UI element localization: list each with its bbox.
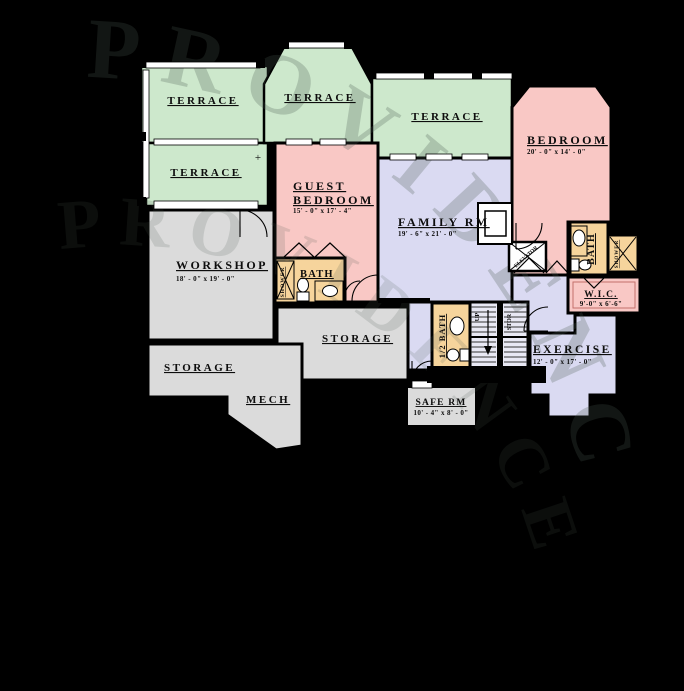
label-storage-left: STORAGE (164, 362, 235, 374)
window-strip (154, 139, 258, 145)
label-guest-line1: GUEST (293, 179, 346, 193)
wall-segment (378, 298, 430, 303)
label-safe-room: SAFE RM (416, 398, 467, 408)
label-stairs-up: UP (474, 313, 481, 322)
dims-exercise: 12' - 0" x 17' - 0" (533, 358, 592, 366)
label-terrace-mid-left: TERRACE (170, 167, 241, 179)
label-mech: MECH (246, 394, 290, 406)
label-family: FAMILY RM (398, 215, 490, 229)
post (256, 59, 265, 68)
label-stairs-stor: STOR (507, 313, 513, 330)
plus-marker: + (255, 152, 261, 164)
wall-band (427, 366, 546, 383)
label-workshop: WORKSHOP (176, 258, 268, 272)
label-terrace-top-middle: TERRACE (284, 92, 355, 104)
sink (450, 317, 464, 335)
post (472, 69, 482, 79)
label-shower-guest: SHOWER (280, 267, 286, 298)
label-bedroom: BEDROOM (527, 133, 608, 147)
toilet-tank (571, 259, 579, 271)
window-strip (154, 201, 258, 209)
label-terrace-top-right: TERRACE (411, 111, 482, 123)
window-strip (146, 62, 260, 68)
toilet (298, 278, 309, 292)
floor-plan-canvas: PROVIDENCE PROVIDENCE (0, 0, 684, 691)
window-strip (286, 139, 312, 145)
label-half-bath: 1/2 BATH (437, 314, 447, 358)
label-storage-middle: STORAGE (322, 333, 393, 345)
window-strip (462, 154, 488, 160)
label-terrace-top-left: TERRACE (167, 95, 238, 107)
dims-wic: 9'-0" x 6'-6" (580, 300, 623, 308)
sink (323, 286, 338, 297)
floor-plan-image: PROVIDENCE PROVIDENCE (0, 0, 684, 691)
dims-safe-room: 10' - 4" x 8' - 0" (413, 409, 468, 417)
window-strip (390, 154, 416, 160)
post (279, 39, 289, 49)
post (137, 132, 146, 141)
dims-workshop: 18' - 0" x 19' - 0" (176, 275, 235, 283)
post (344, 39, 354, 49)
stair-divider (497, 303, 503, 367)
post (137, 59, 146, 68)
sink (573, 230, 585, 246)
label-wic: W.I.C. (584, 290, 618, 300)
label-shower-right: SHOWER (615, 240, 620, 269)
label-bath-guest: BATH (300, 269, 334, 280)
window-strip (426, 154, 452, 160)
window-strip (284, 42, 348, 48)
window-strip (320, 139, 346, 145)
dims-bedroom: 20' - 0" x 14' - 0" (527, 148, 586, 156)
label-guest-line2: BEDROOM (293, 193, 374, 207)
toilet (447, 349, 459, 361)
dims-guest: 15' - 0" x 17' - 4" (293, 207, 352, 215)
toilet-tank (460, 349, 469, 361)
post (424, 69, 434, 79)
label-exercise: EXERCISE (533, 344, 612, 356)
toilet-tank (297, 292, 309, 301)
post (137, 197, 146, 206)
window-strip (376, 73, 512, 79)
dims-family: 19' - 6" x 21' - 0" (398, 230, 457, 238)
label-bath-right: BATH (586, 233, 597, 265)
